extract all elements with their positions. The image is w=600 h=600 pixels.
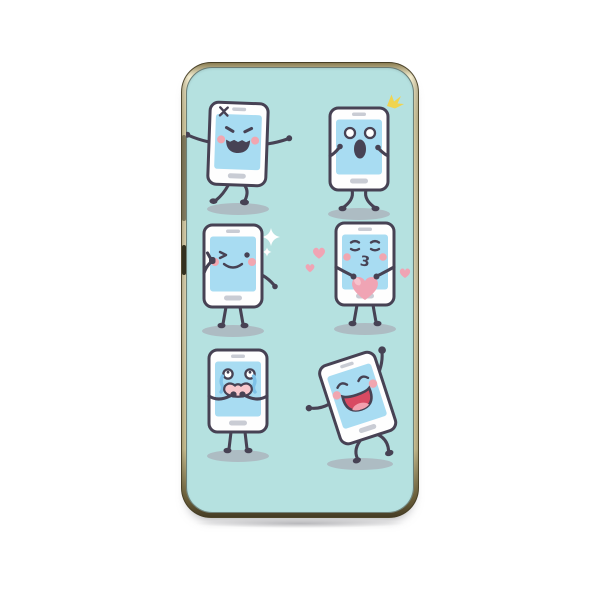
- thumb: [208, 253, 211, 258]
- shocked-mouth: [354, 140, 366, 159]
- right-leg: [244, 185, 247, 200]
- left-hand: [230, 391, 236, 397]
- home-button: [224, 296, 242, 301]
- left-arm: [188, 135, 209, 142]
- left-hand: [337, 144, 343, 150]
- left-hand: [305, 404, 313, 412]
- right-cheek: [248, 258, 256, 266]
- small-sparkle-icon: [263, 248, 272, 257]
- right-hand: [374, 274, 380, 280]
- left-closed-eye: [351, 249, 359, 250]
- floating-heart-icon: [400, 268, 410, 278]
- character-laughing-phone: laughing smartphone: [294, 337, 414, 473]
- right-closed-eye: [371, 249, 379, 250]
- character-crying-phone: crying smartphone: [186, 330, 302, 466]
- left-eye: [223, 369, 232, 378]
- left-eye: [345, 128, 355, 138]
- speaker: [358, 228, 372, 232]
- right-foot: [241, 323, 249, 329]
- home-button: [229, 421, 247, 426]
- case-print-design: angry smartphone: [186, 67, 414, 513]
- right-eye: [244, 252, 249, 257]
- right-leg: [378, 433, 389, 453]
- left-arm: [310, 402, 329, 410]
- right-hand: [375, 145, 381, 151]
- left-leg: [229, 432, 231, 449]
- ground-shadow: [207, 450, 269, 462]
- left-cheek: [343, 253, 351, 261]
- left-leg: [354, 305, 357, 322]
- right-leg: [373, 305, 376, 322]
- right-leg: [240, 307, 243, 324]
- right-foot: [245, 448, 253, 454]
- home-button: [228, 173, 246, 179]
- floating-heart-icon: [306, 264, 315, 272]
- right-hand: [239, 391, 245, 397]
- left-tears-icon: [221, 376, 223, 392]
- character-winking-phone: winking smartphone: [186, 205, 297, 341]
- crying-mouth: [224, 384, 252, 397]
- case-drop-shadow: [196, 519, 404, 528]
- left-foot: [218, 323, 226, 329]
- left-pupil: [227, 371, 230, 374]
- right-eyebrow: [371, 241, 379, 242]
- left-foot: [349, 321, 357, 327]
- right-eye: [365, 128, 375, 138]
- right-tears-icon: [253, 376, 255, 392]
- raised-hand: [377, 345, 387, 355]
- side-button-cutout: [182, 245, 186, 275]
- product-image: angry smartphone: [0, 0, 600, 600]
- ground-shadow: [334, 323, 396, 335]
- speaker: [231, 355, 245, 359]
- right-hand: [272, 284, 278, 290]
- speaker: [352, 113, 366, 117]
- sparkle-icon: [262, 228, 280, 246]
- right-cheek: [379, 253, 387, 261]
- speaker: [226, 230, 240, 234]
- character-angry-phone: angry smartphone: [186, 83, 302, 219]
- right-arm: [267, 138, 288, 145]
- character-kissing-phone: kissing smartphone: [301, 203, 414, 339]
- surprise-sparkle-icon: [387, 95, 404, 109]
- speaker: [232, 107, 246, 111]
- right-leg: [245, 432, 247, 449]
- left-leg: [223, 307, 226, 324]
- left-leg: [216, 184, 229, 200]
- left-hand: [351, 274, 357, 280]
- home-button: [350, 179, 368, 184]
- right-pupil: [249, 371, 252, 374]
- left-eyebrow: [351, 241, 359, 242]
- phone-case: angry smartphone: [181, 62, 419, 518]
- left-foot: [224, 448, 232, 454]
- right-foot: [374, 321, 382, 327]
- right-arm: [262, 275, 274, 285]
- case-edge-shading: [182, 135, 186, 221]
- right-foot: [384, 449, 394, 457]
- floating-heart-icon: [313, 248, 325, 259]
